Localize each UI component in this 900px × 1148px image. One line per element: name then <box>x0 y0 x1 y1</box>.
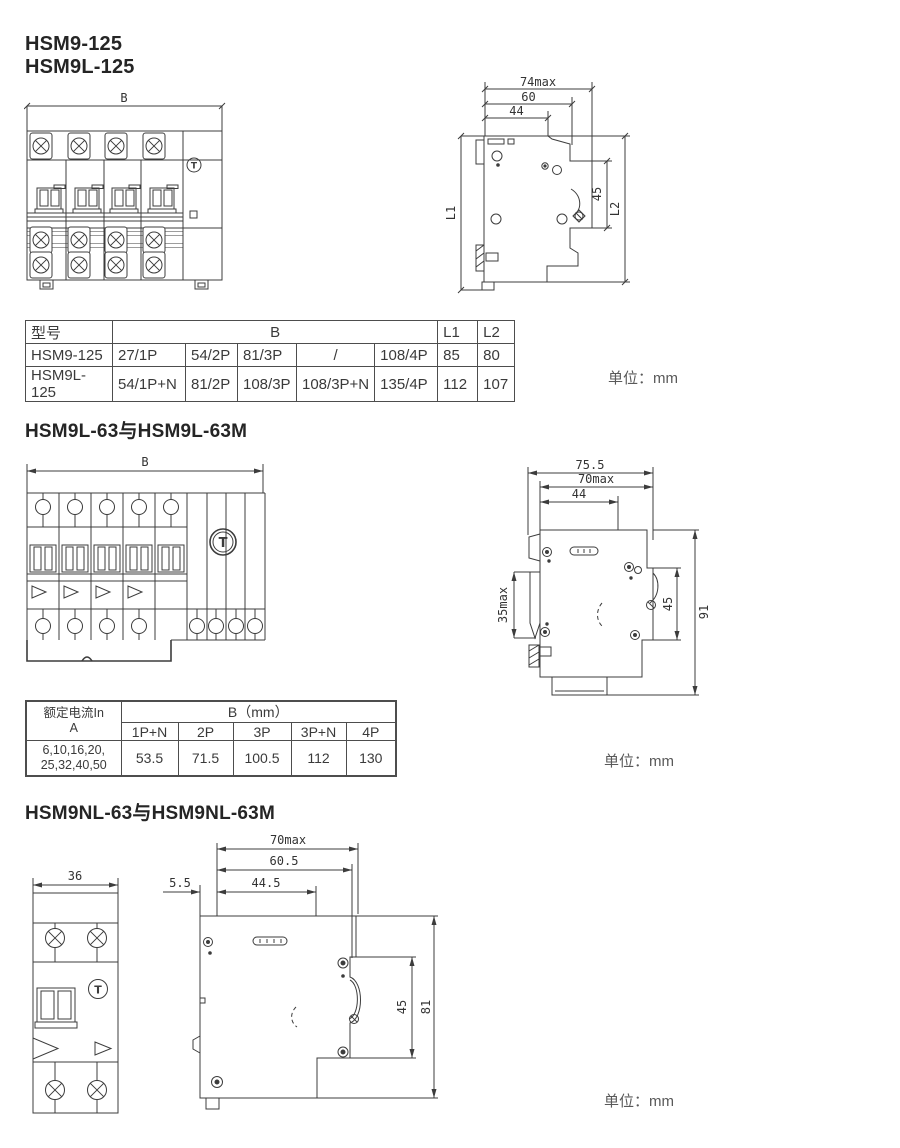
dim-l2-label: L2 <box>609 189 621 229</box>
svg-text:T: T <box>219 536 228 551</box>
trip-indicator-arrows <box>33 1038 111 1059</box>
toggle-handle <box>35 988 77 1028</box>
section2-title: HSM9L-63与HSM9L-63M <box>25 416 247 443</box>
t1-r0-l1: 85 <box>438 344 478 367</box>
side-view-hsm9-125: 74max 60 44 L1 45 L2 <box>440 65 645 310</box>
section1-title: HSM9-125 HSM9L-125 <box>25 33 135 79</box>
t2-header-b: B（mm） <box>121 701 396 723</box>
t2-current-values: 6,10,16,20, 25,32,40,50 <box>26 741 121 776</box>
din-clip-hatch <box>476 245 484 271</box>
t1-r0-b4: 108/4P <box>375 344 438 367</box>
t1-r1-b4: 135/4P <box>375 367 438 402</box>
t2-col-1pn: 1P+N <box>121 723 178 741</box>
dim-91-label: 91 <box>698 592 710 632</box>
t2-col-2p: 2P <box>178 723 233 741</box>
unit-label-1: 单位：mm <box>608 367 678 388</box>
t2-val-2p: 71.5 <box>178 741 233 776</box>
t1-r0-b1: 54/2P <box>186 344 238 367</box>
dim-36-label: 36 <box>60 870 90 882</box>
t2-col-3p: 3P <box>233 723 291 741</box>
t1-header-model: 型号 <box>26 321 113 344</box>
t1-r0-model: HSM9-125 <box>26 344 113 367</box>
t2-col-3pn: 3P+N <box>291 723 346 741</box>
t2-current-values-line2: 25,32,40,50 <box>29 758 119 773</box>
dim-70max-label: 70max <box>266 834 310 846</box>
table-row: HSM9-125 27/1P 54/2P 81/3P / 108/4P 85 8… <box>26 344 515 367</box>
t2-header-current: 额定电流In A <box>26 701 121 741</box>
test-button-icon: T <box>89 980 108 999</box>
dim-line-b <box>24 103 225 131</box>
t2-current-values-line1: 6,10,16,20, <box>29 743 119 758</box>
din-clip-hatch <box>529 645 539 667</box>
test-button-icon: T <box>210 529 236 555</box>
dim-70max-label: 70max <box>574 473 618 485</box>
t2-col-4p: 4P <box>346 723 396 741</box>
dim-b-label: B <box>131 456 159 468</box>
front-view-hsm9l-63: T <box>20 450 270 680</box>
section1-title-line1: HSM9-125 <box>25 33 135 56</box>
side-view-hsm9l-63: 75.5 70max 44 35max 45 91 <box>492 455 717 715</box>
t1-r0-l2: 80 <box>478 344 515 367</box>
t1-r1-l2: 107 <box>478 367 515 402</box>
svg-text:T: T <box>191 162 198 172</box>
dim-60-5-label: 60.5 <box>264 855 304 867</box>
dim-45-label: 45 <box>662 584 674 624</box>
section3-title: HSM9NL-63与HSM9NL-63M <box>25 798 275 825</box>
trip-indicator-arrows <box>32 586 142 598</box>
dim-74max-label: 74max <box>515 76 561 88</box>
t1-header-l2: L2 <box>478 321 515 344</box>
dim-75-5-label: 75.5 <box>570 459 610 471</box>
dim-44-label: 44 <box>505 105 528 117</box>
table-row: 6,10,16,20, 25,32,40,50 53.5 71.5 100.5 … <box>26 741 396 776</box>
top-terminals <box>36 493 179 527</box>
t1-r1-l1: 112 <box>438 367 478 402</box>
dim-45-label: 45 <box>396 987 408 1027</box>
t1-r0-b0: 27/1P <box>113 344 186 367</box>
dim-44-5-label: 44.5 <box>246 877 286 889</box>
dim-45-label: 45 <box>591 174 603 214</box>
dimensions-table-hsm9-125: 型号 B L1 L2 HSM9-125 27/1P 54/2P 81/3P / … <box>25 320 515 402</box>
t1-r0-b3: / <box>297 344 375 367</box>
t1-r1-b2: 108/3P <box>238 367 297 402</box>
svg-text:T: T <box>94 984 102 997</box>
t1-r1-model: HSM9L-125 <box>26 367 113 402</box>
dim-35max-label: 35max <box>497 585 509 625</box>
t2-header-current-line1: 额定电流In <box>29 706 119 721</box>
table-row: HSM9L-125 54/1P+N 81/2P 108/3P 108/3P+N … <box>26 367 515 402</box>
catalog-page: HSM9-125 HSM9L-125 <box>0 0 900 1148</box>
t1-header-b: B <box>113 321 438 344</box>
dim-44-label: 44 <box>568 488 590 500</box>
t2-header-current-line2: A <box>29 721 119 736</box>
dim-81-label: 81 <box>420 987 432 1027</box>
side-view-hsm9nl-63: 70max 60.5 44.5 5.5 45 81 <box>150 830 450 1130</box>
t2-val-4p: 130 <box>346 741 396 776</box>
toggle-handles <box>35 188 176 213</box>
dim-60-label: 60 <box>517 91 540 103</box>
dim-5-5-label: 5.5 <box>163 877 197 889</box>
t2-val-1pn: 53.5 <box>121 741 178 776</box>
t1-r1-b1: 81/2P <box>186 367 238 402</box>
dim-b-label: B <box>110 92 138 104</box>
unit-label-2: 单位：mm <box>604 750 674 771</box>
bottom-terminals <box>36 609 263 640</box>
section1-title-line2: HSM9L-125 <box>25 56 135 79</box>
front-view-hsm9-125: T <box>24 92 229 307</box>
t2-val-3pn: 112 <box>291 741 346 776</box>
toggle-handles <box>27 545 187 581</box>
unit-label-3: 单位：mm <box>604 1090 674 1111</box>
bottom-plate <box>27 640 171 661</box>
t1-r1-b3: 108/3P+N <box>297 367 375 402</box>
dimensions-table-hsm9l-63: 额定电流In A B（mm） 1P+N 2P 3P 3P+N 4P 6,10,1… <box>25 700 397 777</box>
dim-l1-label: L1 <box>445 193 457 233</box>
t1-r1-b0: 54/1P+N <box>113 367 186 402</box>
t1-header-l1: L1 <box>438 321 478 344</box>
t1-r0-b2: 81/3P <box>238 344 297 367</box>
t2-val-3p: 100.5 <box>233 741 291 776</box>
front-view-hsm9nl-63: T 36 <box>25 845 120 1120</box>
